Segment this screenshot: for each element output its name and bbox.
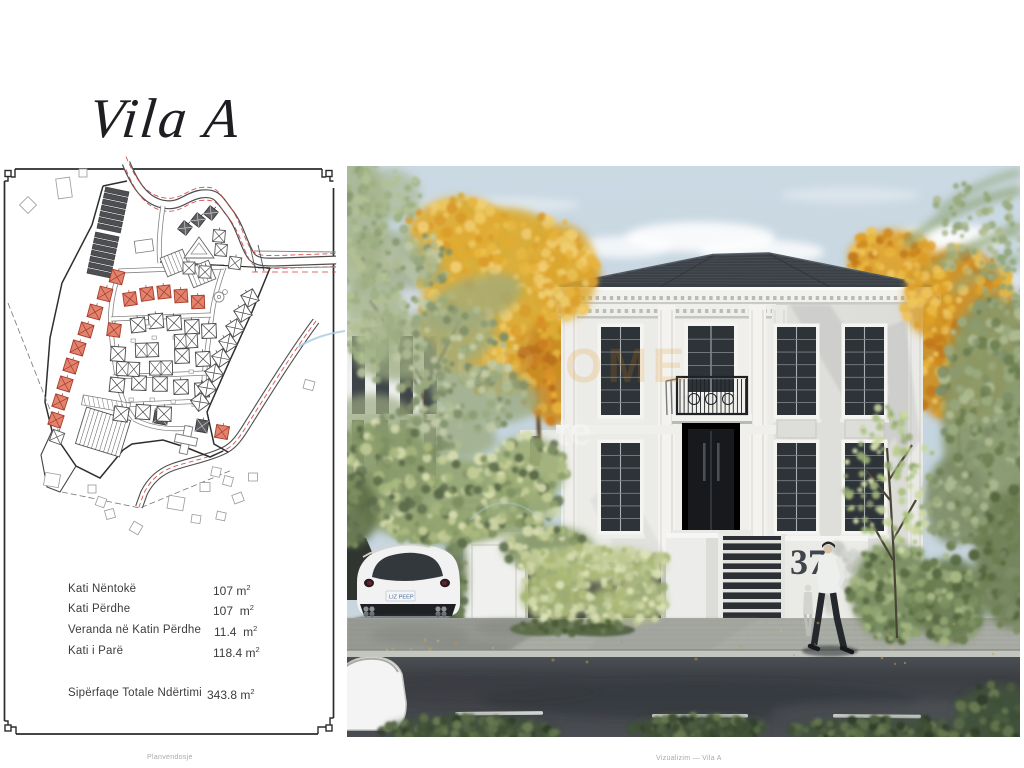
svg-text:UR: UR — [455, 338, 542, 396]
svg-text:OME: OME — [565, 340, 689, 393]
svg-text:LIZ PEEP: LIZ PEEP — [389, 595, 414, 601]
svg-text:te: te — [556, 410, 592, 454]
